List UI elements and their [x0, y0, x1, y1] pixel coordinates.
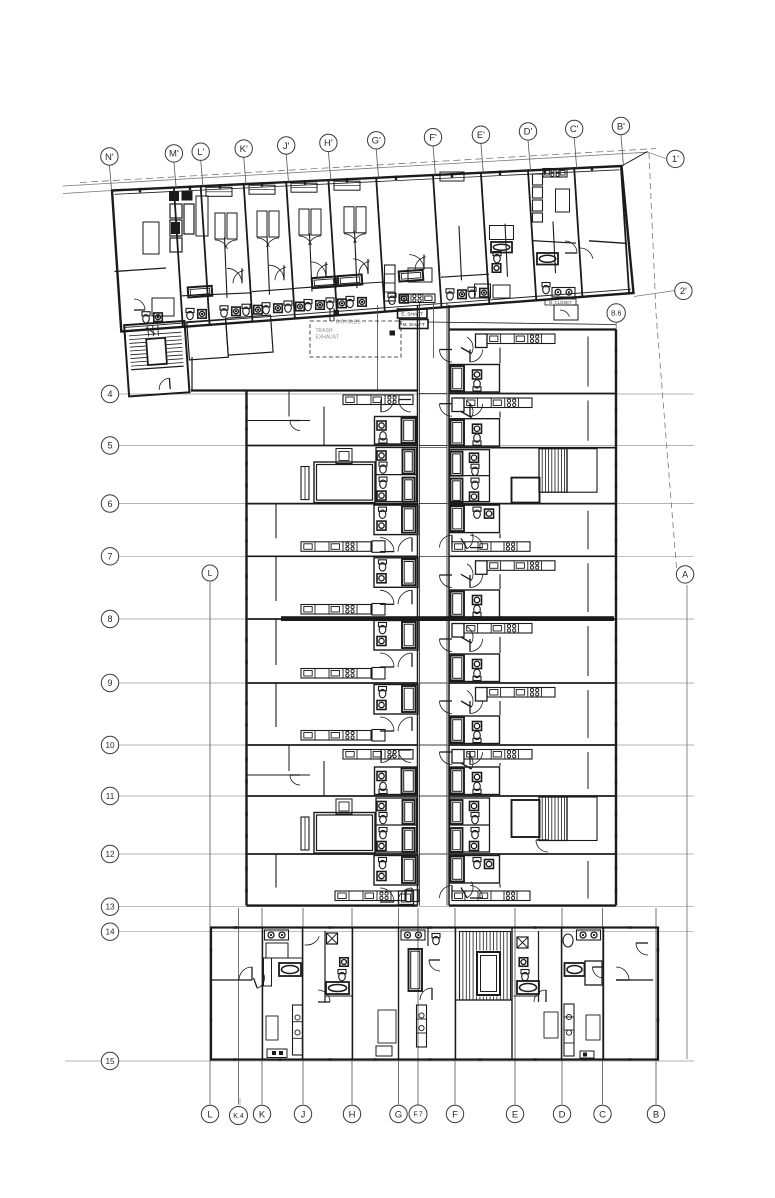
svg-text:13: 13 [105, 903, 115, 912]
svg-text:G': G' [372, 136, 381, 147]
svg-text:C: C [599, 1109, 606, 1120]
svg-text:L: L [207, 1109, 212, 1120]
svg-text:J: J [301, 1109, 306, 1120]
svg-text:K.4: K.4 [233, 1113, 244, 1120]
svg-text:H': H' [324, 138, 333, 149]
svg-text:B. CLOSET: B. CLOSET [549, 300, 572, 305]
svg-text:H: H [349, 1109, 356, 1120]
svg-text:G: G [395, 1109, 402, 1120]
svg-text:D: D [559, 1109, 566, 1120]
svg-text:5: 5 [107, 441, 112, 451]
svg-text:N': N' [105, 152, 114, 163]
svg-text:B: B [653, 1109, 659, 1120]
svg-text:10: 10 [105, 741, 115, 750]
svg-text:TRASH: TRASH [316, 328, 333, 334]
svg-text:F': F' [429, 133, 437, 144]
svg-text:E: E [512, 1109, 518, 1120]
svg-text:4: 4 [107, 389, 112, 399]
svg-text:8: 8 [107, 614, 112, 624]
svg-text:D': D' [524, 127, 533, 138]
svg-text:7: 7 [107, 551, 112, 561]
svg-text:L': L' [197, 147, 204, 158]
svg-text:BICYCLES: BICYCLES [336, 320, 361, 326]
svg-text:A: A [682, 570, 688, 580]
svg-text:F.7: F.7 [413, 1112, 422, 1119]
svg-text:C': C' [570, 124, 579, 135]
svg-text:E': E' [477, 130, 485, 141]
svg-text:1': 1' [672, 154, 679, 165]
svg-text:14: 14 [105, 928, 115, 937]
svg-text:6: 6 [107, 499, 112, 509]
svg-text:K: K [259, 1109, 266, 1120]
svg-text:J': J' [283, 141, 290, 152]
svg-text:11: 11 [106, 792, 115, 801]
svg-text:2': 2' [680, 286, 687, 297]
svg-text:9: 9 [107, 678, 112, 688]
svg-text:15: 15 [105, 1057, 115, 1066]
svg-text:B': B' [617, 121, 625, 132]
svg-text:B.6: B.6 [611, 310, 622, 317]
svg-text:K': K' [240, 144, 248, 155]
svg-text:M. SHAFT: M. SHAFT [403, 322, 425, 328]
svg-text:L: L [208, 568, 213, 578]
svg-text:12: 12 [105, 850, 115, 859]
svg-text:F: F [452, 1109, 458, 1120]
svg-text:EXHAUST: EXHAUST [316, 335, 340, 341]
svg-text:M': M' [169, 149, 179, 160]
